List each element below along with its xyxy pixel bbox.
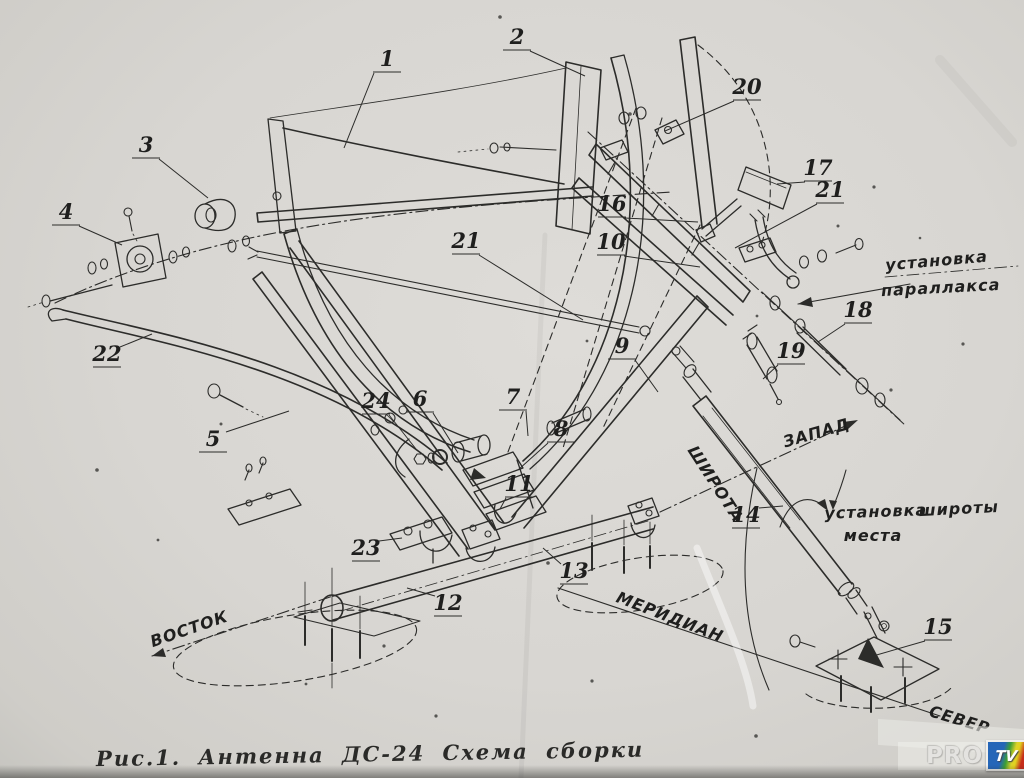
label-ustanovka-shiroty-1: установка (824, 500, 927, 523)
callout-18: 18 (818, 297, 873, 342)
label-meridian: МЕРИДИАН (614, 588, 727, 646)
watermark-tv-text: TV (994, 747, 1018, 765)
parallax-rod (743, 284, 910, 420)
callout-number-16: 16 (597, 191, 627, 216)
callout-22: 22 (91, 334, 152, 367)
callout-3: 3 (132, 132, 208, 198)
scan-edge-shadow (0, 765, 1024, 778)
label-shirota: ШИРОТА (684, 442, 748, 526)
assembly-drawing: 1234567891011121314151617181920212122232… (0, 0, 1024, 778)
callout-number-4: 4 (59, 199, 74, 224)
callout-4: 4 (52, 199, 122, 245)
callout-number-7: 7 (506, 384, 521, 409)
callout-number-5: 5 (206, 426, 221, 451)
callout-number-12: 12 (433, 590, 462, 615)
ground-beam (294, 498, 659, 636)
callout-number-21-right: 21 (814, 177, 844, 202)
callout-12: 12 (407, 588, 463, 616)
callout-number-15: 15 (923, 614, 952, 639)
bracket-4 (115, 208, 166, 287)
callout-number-20: 20 (731, 74, 762, 99)
callout-7: 7 (499, 384, 528, 436)
parallax-arrowhead (798, 297, 813, 307)
callout-number-19: 19 (776, 338, 806, 363)
feed-cone (195, 200, 235, 231)
callout-number-21-left: 21 (450, 228, 480, 253)
rotation-arrow (780, 500, 824, 527)
callout-number-18: 18 (843, 297, 873, 322)
callout-1: 1 (344, 46, 401, 148)
label-ustanovka-parallaksa-2: параллакса (881, 275, 1001, 300)
callout-number-24: 24 (360, 388, 390, 413)
upper-fittings (619, 107, 799, 288)
callout-number-9: 9 (615, 333, 630, 358)
callout-number-10: 10 (596, 229, 626, 254)
label-vostok: ВОСТОК (148, 607, 231, 651)
scanned-page: 1234567891011121314151617181920212122232… (0, 0, 1024, 778)
callout-number-23: 23 (350, 535, 380, 560)
callout-number-22: 22 (91, 341, 121, 366)
callout-21-left: 21 (450, 228, 583, 320)
callout-10: 10 (596, 229, 700, 267)
callout-number-2: 2 (509, 24, 525, 49)
callout-number-8: 8 (553, 416, 569, 441)
callout-number-6: 6 (413, 386, 428, 411)
callout-number-13: 13 (559, 558, 588, 583)
label-zapad: ЗАПАД (780, 414, 852, 451)
callout-2: 2 (503, 24, 585, 76)
label-ustanovka-shiroty-3: места (844, 526, 902, 545)
label-ustanovka-shiroty-2: широты (918, 497, 999, 520)
callout-number-3: 3 (139, 132, 154, 157)
callout-9: 9 (608, 333, 658, 392)
callout-number-1: 1 (380, 46, 395, 71)
callout-5: 5 (199, 411, 289, 452)
callout-23: 23 (350, 535, 402, 561)
callout-15: 15 (873, 614, 953, 656)
label-ustanovka-parallaksa-1: установка (884, 247, 988, 275)
callout-20: 20 (665, 74, 762, 131)
callout-16: 16 (597, 191, 698, 222)
callout-number-11: 11 (504, 471, 533, 496)
struts (48, 241, 650, 556)
